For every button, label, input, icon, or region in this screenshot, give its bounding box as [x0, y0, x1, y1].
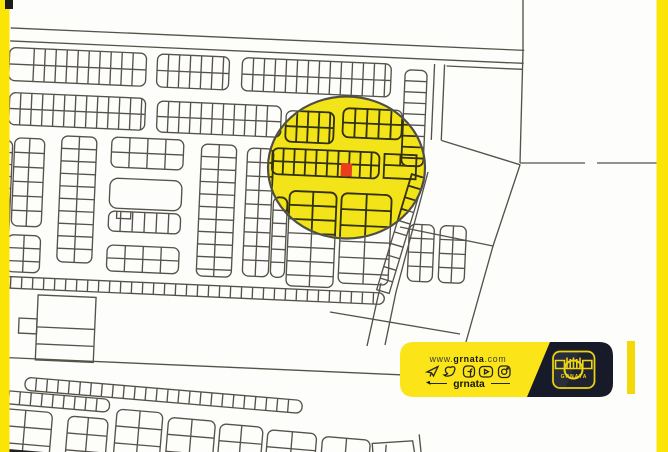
svg-text:www.grnata.com: www.grnata.com: [429, 354, 507, 364]
svg-text:grnata: grnata: [453, 379, 485, 390]
svg-text:GRNATA: GRNATA: [561, 374, 588, 380]
